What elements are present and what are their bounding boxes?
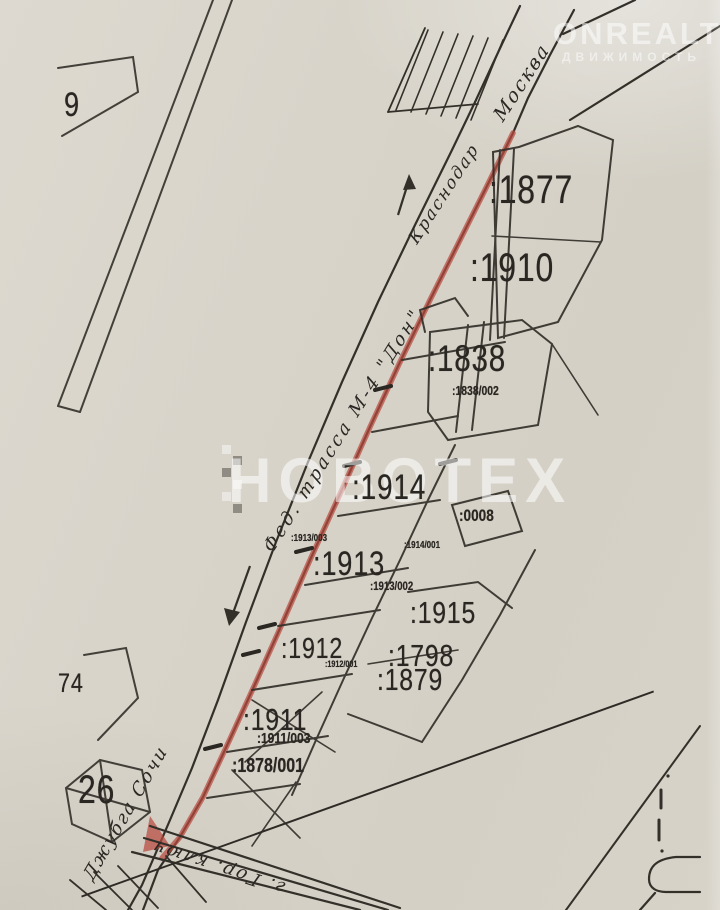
plot-label-1912-001: :1912/001 bbox=[325, 659, 357, 669]
plot-label-1915: :1915 bbox=[410, 595, 476, 631]
scanned-cadastral-map: НОВОТЕХ ONREALT ДВИЖИМОСТЬ 9 74 26 :1877… bbox=[0, 0, 720, 910]
plot-label-74: 74 bbox=[58, 668, 84, 699]
plot-label-1838: :1838 bbox=[428, 338, 506, 380]
bottom-right-marks bbox=[566, 726, 700, 910]
plot-label-1877: :1877 bbox=[489, 168, 573, 213]
plot-label-1910: :1910 bbox=[470, 246, 554, 291]
field-boundaries bbox=[58, 0, 232, 842]
plot-label-1878-001: :1878/001 bbox=[232, 755, 304, 778]
watermark-brand-subtitle: ДВИЖИМОСТЬ bbox=[562, 50, 701, 64]
plot-label-1914-001: :1914/001 bbox=[404, 540, 440, 551]
plot-label-0008: :0008 bbox=[459, 506, 494, 526]
plot-label-1838-002: :1838/002 bbox=[452, 383, 499, 398]
plot-label-9: 9 bbox=[64, 86, 80, 125]
plot-label-1914: :1914 bbox=[352, 468, 426, 508]
plot-label-1879: :1879 bbox=[377, 662, 443, 698]
watermark-brand: ONREALT bbox=[553, 16, 720, 52]
plot-label-26: 26 bbox=[78, 768, 654, 813]
plot-label-1913-003: :1913/003 bbox=[291, 533, 327, 544]
plot-label-1913-002: :1913/002 bbox=[370, 579, 413, 593]
plot-label-1911-003: :1911/003 bbox=[257, 730, 310, 747]
